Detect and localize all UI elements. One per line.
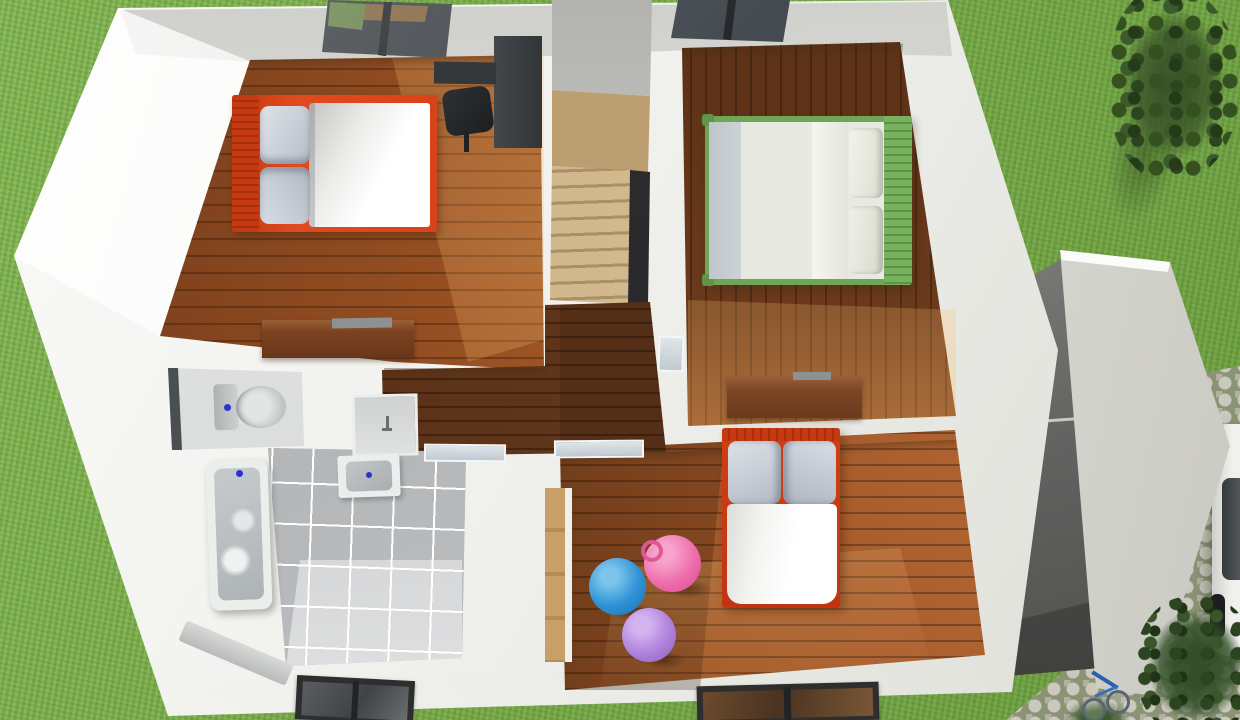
floor-plan-render: Photorealistic top-down 3D render of a h… <box>0 0 1240 720</box>
glass-door-room3 <box>554 440 644 459</box>
wardrobe-room3-edge <box>565 488 572 662</box>
sink-niche <box>351 393 418 456</box>
bed-room1-pillow <box>260 167 310 224</box>
bicycle-wheel <box>1106 690 1130 714</box>
bed-room1-headboard <box>232 95 259 232</box>
wall-shadow <box>384 368 546 376</box>
bed-room1-duvet <box>309 103 430 227</box>
bed-room1-pillow <box>260 106 310 164</box>
sink-faucet-icon <box>382 428 392 431</box>
dresser-room2 <box>727 376 862 418</box>
car-window <box>1222 478 1240 580</box>
bouncy-ball-purple <box>622 608 676 662</box>
office-chair-post <box>464 130 469 152</box>
desk-room1-return <box>434 61 496 84</box>
bed-room2-pillow <box>849 206 883 274</box>
shrub-bottom-right <box>1136 596 1240 720</box>
bed-room2-headboard <box>884 116 912 285</box>
washbasin-drain-dot <box>366 472 372 478</box>
bed-room2-pillow <box>849 128 883 198</box>
bed-room3-pillow <box>728 441 781 504</box>
window-room3-mullion <box>784 687 792 720</box>
bouncy-ball-pink-handle <box>641 540 663 562</box>
glass-door-bathroom <box>424 444 506 463</box>
glass-door-room2 <box>657 336 684 373</box>
bed-room3-pillow <box>783 441 836 504</box>
bed-room2-duvet-fold <box>812 122 848 279</box>
toilet-flush-button <box>224 404 231 411</box>
desk-room1 <box>494 36 542 148</box>
bicycle-wheel <box>1082 698 1106 720</box>
dresser-room2-item <box>793 372 831 380</box>
bed-room3-duvet <box>727 504 837 604</box>
bed-room3-headboard <box>722 428 840 441</box>
bouncy-ball-blue <box>589 558 646 615</box>
bathtub-interior <box>214 467 265 601</box>
bathtub-faucet-dot <box>236 470 243 477</box>
wardrobe-room3 <box>545 488 567 662</box>
tree <box>1108 0 1240 182</box>
dresser-room1-tray <box>332 317 392 328</box>
bed-room2-sheet <box>709 122 741 279</box>
